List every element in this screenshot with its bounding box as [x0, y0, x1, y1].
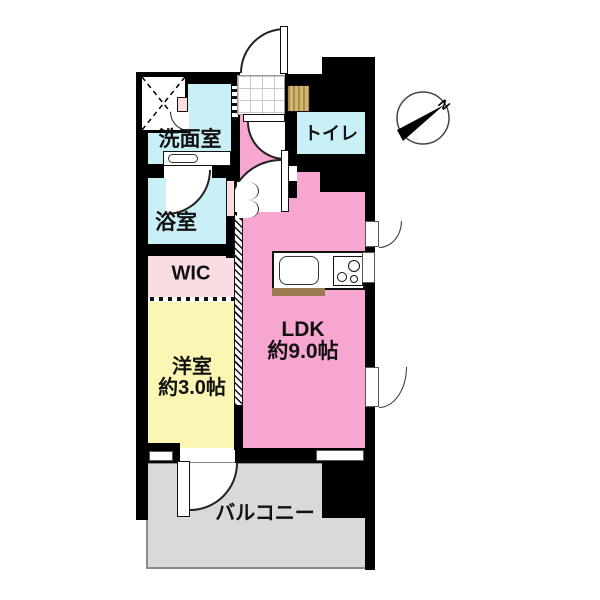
entrance-step — [243, 114, 285, 122]
entrance-door-swing — [240, 28, 285, 73]
entrance-tile — [237, 75, 285, 115]
casement-window-swing — [379, 367, 407, 408]
stove-burner-icon — [337, 272, 347, 282]
casement-window — [365, 221, 379, 247]
wall — [322, 57, 375, 85]
fold-door-swing — [237, 200, 259, 218]
vanity-sink — [168, 154, 198, 163]
window — [316, 450, 364, 461]
balcony-door-leaf — [177, 461, 190, 517]
balcony-label: バルコニー — [215, 504, 315, 525]
toilet-label: トイレ — [304, 125, 358, 144]
ldk-label: LDK 約9.0帖 — [267, 319, 338, 363]
wall — [148, 244, 240, 256]
sliding-partition — [234, 215, 243, 405]
washroom-label: 洗面室 — [159, 129, 222, 151]
bathroom-fold-door-panel — [226, 180, 235, 217]
wall — [320, 172, 365, 192]
stove-burner-icon — [350, 275, 358, 283]
bathroom-label: 浴室 — [155, 212, 197, 234]
stove-burner-icon — [348, 260, 360, 272]
window — [149, 451, 173, 461]
kitchen-sink — [279, 256, 319, 285]
fixed-window — [362, 252, 375, 283]
casement-window-swing — [379, 221, 402, 248]
fold-door-swing — [237, 182, 259, 200]
stove — [333, 256, 363, 286]
wall — [234, 405, 243, 450]
wall — [285, 74, 325, 85]
casement-window — [365, 367, 379, 407]
entrance-door-leaf — [280, 26, 288, 74]
compass-icon: N — [394, 89, 454, 149]
counter-edge — [272, 288, 325, 296]
ldk-door-leaf — [281, 150, 289, 212]
shoe-cabinet — [287, 85, 310, 112]
washroom-door-panel — [177, 97, 188, 112]
closet-opening — [150, 297, 235, 301]
vanity-unit — [163, 151, 231, 166]
wall — [322, 460, 375, 518]
floorplan: 洗面室 浴室 WIC 洋室 約3.0帖 LDK 約9.0帖 トイレ バルコニー … — [0, 0, 600, 600]
western-room-label: 洋室 約3.0帖 — [158, 357, 226, 399]
wic-label: WIC — [172, 264, 211, 285]
